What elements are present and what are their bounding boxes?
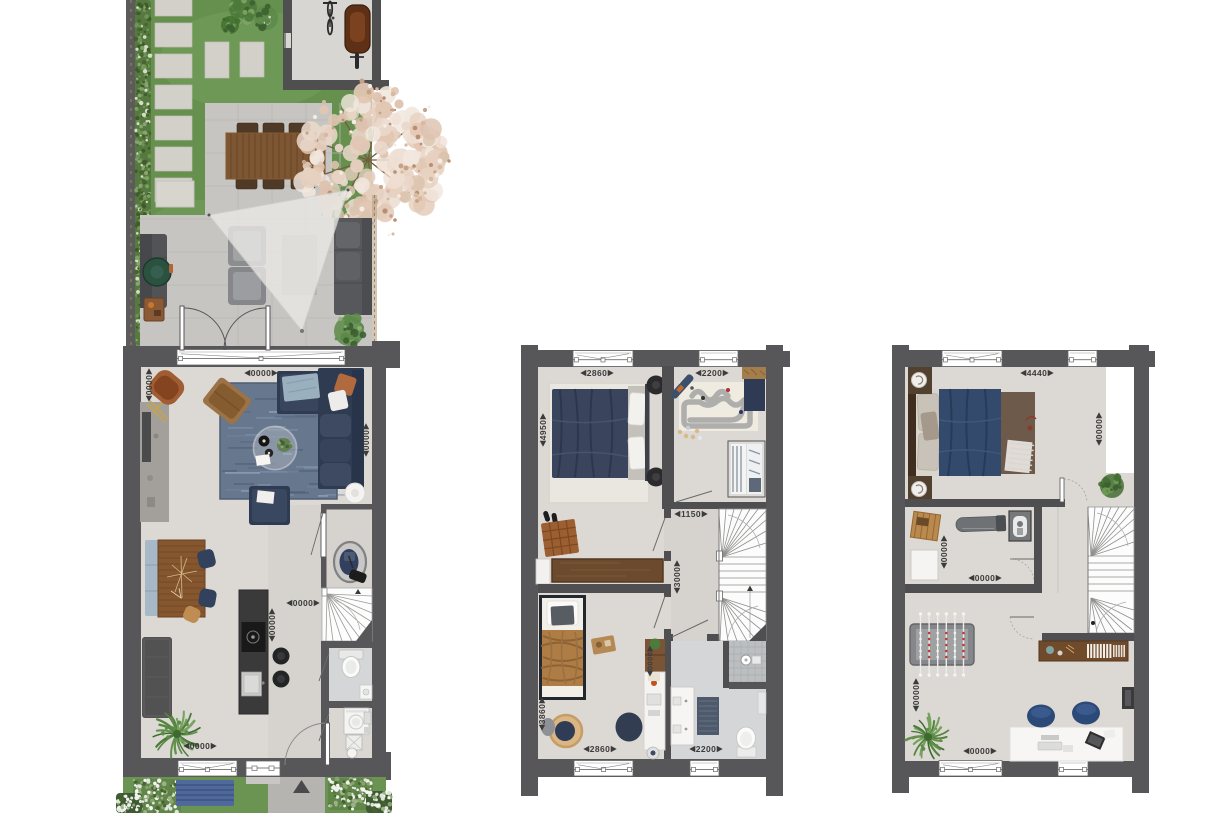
svg-text:2860: 2860 [587,368,608,378]
svg-text:4440: 4440 [1027,368,1048,378]
svg-text:0000: 0000 [646,652,655,670]
svg-text:1150: 1150 [681,509,701,519]
svg-text:2200: 2200 [696,744,717,754]
svg-text:0000: 0000 [970,746,991,756]
svg-text:0000: 0000 [1094,419,1104,440]
svg-text:0000: 0000 [361,430,371,451]
svg-text:3860: 3860 [537,704,547,725]
svg-text:0000: 0000 [144,375,154,396]
svg-text:0000: 0000 [939,542,949,563]
svg-text:2860: 2860 [590,744,611,754]
svg-text:0000: 0000 [251,368,272,378]
svg-text:0000: 0000 [975,573,996,583]
svg-text:3000: 3000 [672,567,682,588]
svg-text:0000: 0000 [293,598,314,608]
svg-text:0000: 0000 [267,615,277,636]
svg-text:2200: 2200 [702,368,723,378]
svg-text:4950: 4950 [538,420,548,441]
svg-text:0000: 0000 [911,685,921,706]
svg-text:0000: 0000 [190,741,211,751]
